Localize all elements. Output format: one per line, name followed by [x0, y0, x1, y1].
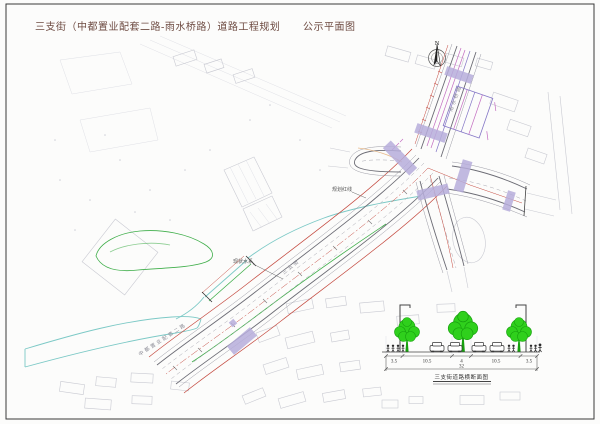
- drawing-title: 三支街（中都置业配套二路-雨水桥路）道路工程规划 公示平面图: [35, 20, 356, 33]
- existing-background: [54, 36, 572, 410]
- sheet-border: [6, 4, 594, 419]
- main-road-name: 三支街: [281, 258, 302, 276]
- dim-total: 32: [459, 365, 465, 370]
- drawing-sheet: 三支街（中都置业配套二路-雨水桥路）道路工程规划 公示平面图: [0, 0, 600, 424]
- dim-4: 3.5: [526, 360, 533, 365]
- planning-redline-se: [184, 186, 447, 393]
- cross-section: 3.5 10.5 4 10.5 3.5 32 三支街道路横断面图: [382, 305, 542, 384]
- leader-labels: 现状水系 规划红线: [233, 186, 366, 279]
- section-caption: 三支街道路横断面图: [434, 373, 488, 381]
- crosswalk-bridge: [227, 327, 257, 355]
- crosswalk-west: [383, 141, 417, 176]
- cars: [430, 342, 504, 352]
- lavender-block: [443, 86, 501, 141]
- plan-canvas: 三支街（中都置业配套二路-雨水桥路）道路工程规划 公示平面图: [0, 0, 600, 424]
- crosswalk-north: [414, 123, 448, 143]
- dim-1: 10.5: [423, 360, 432, 365]
- existing-pond-oval: [449, 214, 490, 266]
- planning-redline-nw: [149, 149, 412, 357]
- intersection: 雨水桥路: [328, 44, 556, 292]
- tree-right: [507, 318, 532, 353]
- label-water: 现状水系: [233, 258, 253, 265]
- label-redline: 规划红线: [332, 186, 352, 193]
- title-main: 三支街（中都置业配套二路-雨水桥路）道路工程规划: [35, 20, 280, 33]
- dim-3: 10.5: [492, 360, 501, 365]
- end-road-name: 中都置业配套二路: [137, 321, 188, 357]
- title-sub: 公示平面图: [303, 21, 356, 33]
- hatched-parcel: [224, 157, 282, 231]
- existing-buildings: [59, 296, 520, 410]
- dim-0: 3.5: [391, 360, 398, 365]
- scatter-dots: [54, 104, 321, 231]
- main-road: 三支街 中都置业配套二路: [137, 149, 447, 393]
- north-arrow: N: [429, 40, 446, 67]
